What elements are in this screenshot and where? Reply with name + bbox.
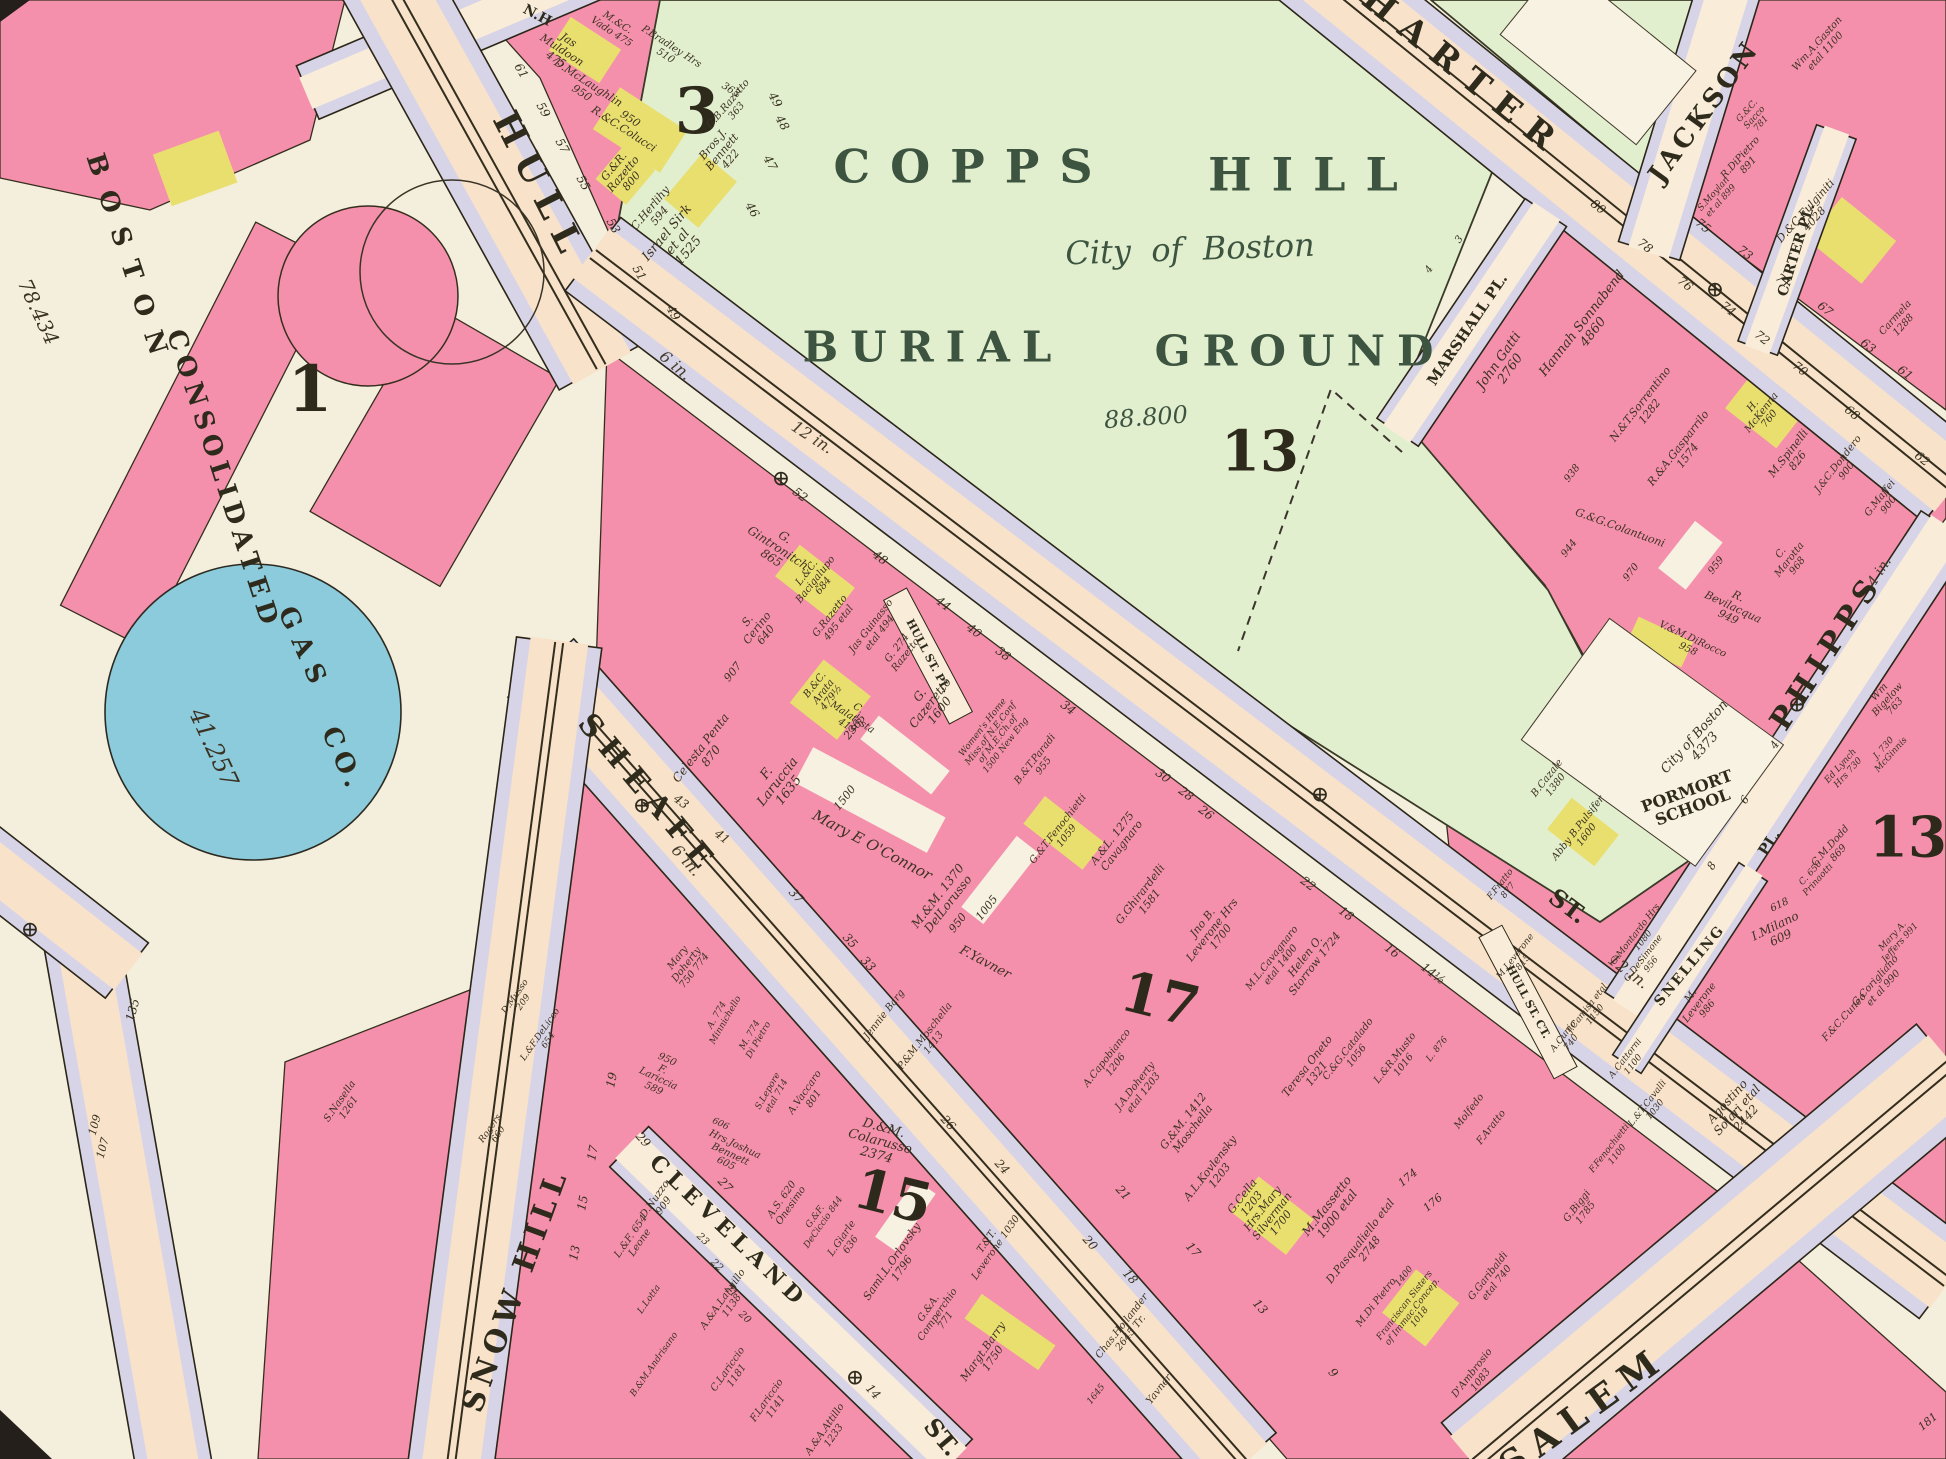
house-number: 15 [575,1194,591,1212]
house-number: 49 [664,303,683,323]
street-label-snow-hill: SNOW HILL [457,1163,575,1416]
house-number: 34 [1058,698,1078,717]
parcel-label: S.Nasella 1261 [323,1079,368,1130]
parcel-label: Mary Doherty 750 774 [662,939,713,991]
parcel-label: Ed Lynch Hrs 730 [1824,748,1867,793]
house-number: 47 [761,153,780,173]
title-hill: HILL [1208,151,1418,200]
parcel-label: Hannah Sonnabend 4860 [1537,268,1639,387]
house-number: 27 [715,1175,735,1195]
house-number: 44 [933,594,953,613]
house-number: 76 [1675,274,1695,294]
parcel-label: Abby B.Pulsifer 1600 [1550,795,1615,870]
parcel-label: G.Garibaldi etal 740 [1467,1251,1519,1310]
house-number: 23 [694,1232,711,1248]
parcel-label: M.Massetto 1900 etal [1300,1174,1364,1246]
parcel-label: F.Fenochietti 1100 [1588,1123,1639,1181]
parcel-label: Wm.A.Gaston etal 1100 [1791,15,1853,80]
parcel-label: 907 [722,660,744,684]
gas-co-name-3: GAS [272,603,334,697]
house-number: 13 [567,1244,583,1262]
house-number: 14 [863,1382,883,1402]
street-label-charter: CHARTER [1324,0,1573,165]
house-number: 174 [1396,1167,1420,1189]
parcel-label: L.Lotta [637,1284,664,1316]
parcel-label: N.&T.Sorrentino 1282 [1608,365,1683,451]
parcel-label: S.Moylan et al 899 [1697,176,1740,220]
parcel-label: G.&G.Colantuoni [1574,506,1667,549]
gas-co-name-4: CO. [315,723,368,797]
map-label-layer: HULLN.HSHEAFEST.SNOW HILLCLEVELANDCHARTE… [0,0,1946,1459]
parcel-label: G.&R. Razetto 800 [596,146,650,201]
parcel-label: Margt.Barry 1750 [959,1320,1018,1390]
house-number: 13 [1250,1297,1270,1317]
house-number: 14½ [1418,961,1447,987]
parcel-label: John Gatti 2760 [1475,330,1536,400]
parcel-label: G.Maffei 900 [1863,478,1906,525]
house-number: 17 [1183,1240,1203,1260]
utility-symbol: ⊕ [772,467,790,490]
parcel-label: L.&T.Cavalli 1030 [1627,1079,1676,1135]
house-number: 59 [534,100,553,120]
parcel-label: 1500 [832,783,858,812]
parcel-label: Saml.L.Orlovsky 1796 [861,1221,933,1309]
house-number: 26 [1196,803,1216,822]
house-number: 33 [858,954,878,974]
house-number: 55 [574,173,593,193]
burial-area-value: 88.800 [1103,402,1189,433]
house-number: 4 [1768,739,1782,751]
parcel-label: A.Cattorni 1100 [1608,1038,1652,1087]
house-number: 51 [630,263,649,283]
parcel-label: Yavner [1145,1373,1175,1407]
parcel-label: C. 650 Prinaotti [1795,856,1836,898]
parcel-label: L.Giarle 636 [827,1219,868,1265]
parcel-label: F.Lariccio 1141 [749,1378,795,1431]
parcel-label: Jno B. Leverone Hrs 1700 [1175,889,1249,970]
parcel-label: 1400 [1394,1265,1416,1289]
house-number: 41 [712,827,732,846]
street-label-salem: SALEM [1492,1339,1673,1459]
parcel-label: G.Ghirardelli 1581 [1114,862,1177,933]
parcel-label: F.Yavner [957,944,1013,982]
pipe-note: 6 in. [656,348,694,384]
parcel-label: G.&M. 1412 Moschella [1158,1091,1218,1159]
house-number: 18 [1336,904,1356,923]
utility-symbol: ⊕ [1311,783,1329,806]
parcel-label: 970 [1622,562,1642,584]
parcel-label: F.Fratto 877 [1486,868,1523,908]
utility-symbol: ⊕ [633,794,651,817]
house-number: 49 [766,90,785,110]
parcel-label: B.Cazale 1380 [1530,758,1574,806]
house-number: 30 [1153,766,1173,785]
parcel-label: 938 [1563,463,1583,485]
parcel-label: F. Laruccia 1635 [744,747,812,818]
parcel-label: A.Vaccaro 801 [787,1069,833,1123]
parcel-label: I.Milano 609 [1750,909,1807,954]
title-city-of-boston: City of Boston [1065,229,1315,272]
block-number-17: 17 [1115,962,1205,1038]
block-number-1: 1 [288,356,333,424]
parcel-label: F.Aratto [1475,1109,1508,1148]
gas-tank-area-value: 41.257 [184,705,243,792]
house-number: 61 [1895,363,1915,383]
house-number: 68 [1842,403,1862,423]
parcel-label: T.&T. Leverone 1030 [962,1208,1023,1282]
house-number: 9 [1326,1366,1341,1380]
parcel-label: 950 [947,911,969,935]
street-label-sheafe-st: ST. [919,1413,964,1459]
parcel-label: A.&A.Langillo 1138 [699,1268,757,1338]
parcel-label: C. Marotta 968 [1765,534,1815,586]
parcel-label: P.&M.Moschella 1413 [896,1001,963,1079]
house-number: 53 [604,216,623,236]
parcel-label: Agostino Solari etal 2442 [1702,1074,1772,1146]
block-number-15: 15 [848,1159,938,1235]
house-number: 20 [1080,1233,1100,1253]
title-copps: COPPS [833,143,1112,192]
house-number: 61 [512,61,531,81]
house-number: 17 [585,1144,601,1162]
parcel-label: Rogers 660 [478,1113,512,1150]
house-number: 52 [790,485,810,504]
parcel-label: 959 [1707,555,1727,577]
parcel-label: R. Bevilacqua 949 [1698,578,1768,636]
parcel-label: Molfedo [1453,1092,1487,1131]
parcel-label: J.Camisa etal 1150 [1566,983,1618,1042]
house-number: 37 [786,886,806,906]
parcel-label: Mary E O'Connor [810,808,935,884]
parcel-label: L. 876 [1425,1036,1450,1065]
utility-symbol: ⊕ [1706,278,1724,301]
parcel-label: C.Lariccio 1181 [710,1346,757,1400]
utility-symbol: ⊕ [846,1366,864,1389]
parcel-label: 944 [1560,538,1580,560]
parcel-label: V.&M.DiRocco 958 [1652,620,1727,670]
house-number: 22 [1298,874,1318,893]
house-number: 67 [1815,299,1835,319]
house-number: 4 [1424,264,1436,275]
house-number: 40 [964,621,984,640]
parcel-label: G.&T.Fenochietti 1059 [1028,793,1097,873]
parcel-label: R.&A.Gasparrilo 1574 [1646,409,1721,496]
parcel-label: B.&M.Andrisano [629,1331,680,1399]
pipe-note: 12 in. [788,418,836,457]
parcel-label: 950 F. Lariccia 589 [632,1047,687,1103]
parcel-label: M.&C. Vado 475 [589,6,640,49]
parcel-label: D.&M. Colarusso 2374 [843,1114,917,1171]
atlas-map-canvas: HULLN.HSHEAFEST.SNOW HILLCLEVELANDCHARTE… [0,0,1946,1459]
parcel-label: S. Cerino 640 [732,602,783,653]
gas-area-value: 78.434 [14,276,63,348]
house-number: 62 [1912,449,1932,469]
parcel-label: 950 R.&C.Colucci [589,94,664,154]
block-number-13-east: 13 [1869,808,1946,867]
parcel-label: Chas.Hollander 2645 Tr. [1094,1292,1159,1367]
parcel-label: Jennie Barg [862,988,907,1041]
parcel-label: A.&L. 1275 Cavagnaro [1088,810,1145,874]
parcel-label: P.Bradley Hrs 510 [633,24,702,79]
house-number: 19 [604,1071,620,1089]
house-number: 109 [87,1113,104,1136]
parcel-label: D.Musso 209 [501,978,539,1021]
parcel-label: A.S. 620 Onesimo [766,1179,809,1228]
street-label-phipps-pl: PL. [1756,827,1784,858]
house-number: 70 [1790,359,1810,379]
parcel-label: 1645 [1086,1383,1108,1407]
house-number: 181 [1916,1411,1940,1433]
house-number: 16 [1382,941,1402,960]
parcel-label: 1005 [974,893,1000,922]
house-number: 18 [1120,1267,1140,1287]
house-number: 35 [840,931,860,951]
parcel-label: L.&F. 654 Leone [613,1214,659,1267]
house-number: 57 [553,136,572,156]
parcel-label: G.&A. Comperchio 771 [907,1281,968,1350]
house-number: 8 [1705,860,1719,872]
house-number: 46 [743,200,762,220]
house-number: 48 [870,548,890,567]
house-number: 80 [1588,197,1608,217]
title-burial: BURIAL [803,326,1064,371]
school-label: PORMORT SCHOOL [1639,768,1741,833]
house-number: 24 [992,1157,1012,1177]
house-number: 38 [993,644,1013,663]
street-label-hull-st-east: ST. [1544,884,1592,929]
parcel-label: B.&T.Paradi 955 [1013,733,1067,794]
house-number: 3 [1454,234,1466,245]
parcel-label: A.&A.Attillo 1233 [804,1402,856,1459]
parcel-label: G. Cazeretto 1600 [897,668,964,738]
parcel-label: D.&C.Fulginiti 4028 [1774,177,1845,252]
house-number: 72 [1752,328,1772,348]
parcel-label: G.Biggi 1785 [1562,1189,1602,1231]
house-number: 6 [1738,794,1752,806]
house-number: 21 [1113,1183,1133,1203]
block-number-13-burial: 13 [1221,422,1299,481]
parcel-label: J.&C.Dondero 900 [1813,434,1872,502]
parcel-label: M.Spinelli 826 [1766,427,1819,486]
parcel-label: Carmela 1288 [1878,299,1922,345]
parcel-label: G.&C. Sacco 781 [1735,98,1774,137]
house-number: 20 [736,1310,753,1326]
parcel-label: L.&F.DeLicco 654 [520,1007,571,1068]
parcel-label: A. 774 Minnichello [700,990,743,1046]
house-number: 48 [773,113,792,133]
house-number: 63 [1858,336,1878,356]
parcel-label: J. 730 McGinnis [1866,729,1909,774]
house-number: 28 [1176,784,1196,803]
parcel-label: M. 774 Di Pietro [737,1016,774,1061]
utility-symbol: ⊕ [21,918,39,941]
house-number: 78 [1635,236,1655,256]
house-number: 135 [124,997,142,1022]
title-ground: GROUND [1155,330,1446,375]
pipe-note: 4 in. [1865,555,1894,589]
house-number: 29 [633,1130,653,1150]
parcel-label: Celesta Penta 870 [670,711,741,792]
parcel-label: H. McKenna 760 [1735,384,1789,441]
parcel-label: G.Corigliano et al 990 [1851,954,1909,1016]
parcel-label: Wm Bigelow 763 [1863,674,1914,725]
parcel-label: D'Ambrosio 1083 [1450,1347,1503,1407]
parcel-label: L.&R.Musto 1016 [1373,1031,1427,1092]
house-number: 107 [95,1136,112,1159]
gas-co-name-2: CONSOLIDATED [160,326,283,633]
house-number: 73 [1735,243,1755,263]
parcel-label: Hrs.Joshua Bennett 605 [698,1129,762,1181]
house-number: 22 [708,1258,725,1274]
house-number: 26 [938,1113,958,1133]
parcel-label: J.A.Doherty etal 1203 [1114,1061,1166,1119]
house-number: 176 [1421,1192,1445,1214]
